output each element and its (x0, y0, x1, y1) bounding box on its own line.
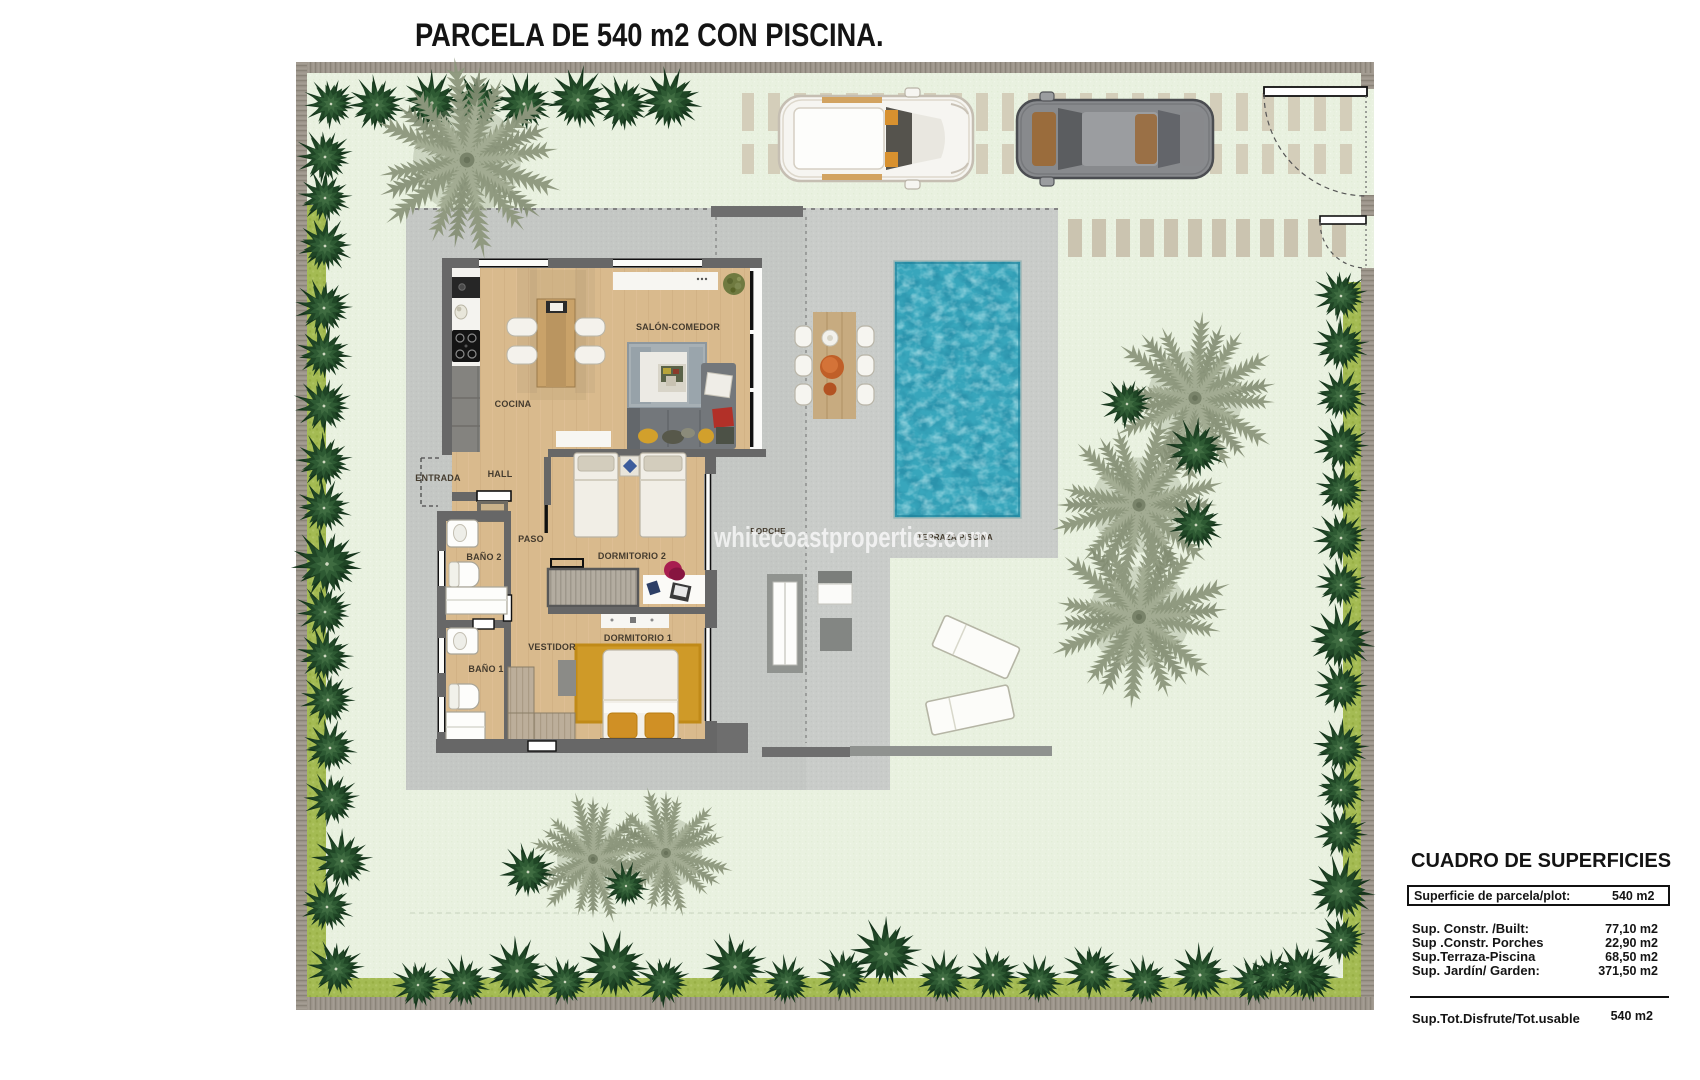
svg-text:Sup.Terraza-Piscina: Sup.Terraza-Piscina (1412, 949, 1536, 964)
svg-text:SALÓN-COMEDOR: SALÓN-COMEDOR (636, 321, 720, 332)
svg-text:HALL: HALL (488, 469, 513, 479)
svg-text:68,50 m2: 68,50 m2 (1605, 950, 1658, 964)
svg-text:COCINA: COCINA (495, 399, 532, 409)
svg-text:PASO: PASO (518, 534, 544, 544)
svg-text:Sup. Constr. /Built:: Sup. Constr. /Built: (1412, 921, 1529, 936)
svg-text:CUADRO DE SUPERFICIES: CUADRO DE SUPERFICIES (1411, 850, 1671, 872)
svg-text:whitecoastproperties.com: whitecoastproperties.com (713, 522, 989, 553)
svg-text:Superficie de parcela/plot:: Superficie de parcela/plot: (1414, 889, 1570, 903)
svg-text:22,90 m2: 22,90 m2 (1605, 936, 1658, 950)
svg-text:ENTRADA: ENTRADA (415, 473, 461, 483)
svg-text:Sup .Constr. Porches: Sup .Constr. Porches (1412, 935, 1543, 950)
svg-text:PARCELA DE 540 m2 CON PISCINA.: PARCELA DE 540 m2 CON PISCINA. (415, 18, 884, 54)
svg-text:BAÑO 2: BAÑO 2 (466, 552, 501, 562)
svg-text:77,10 m2: 77,10 m2 (1605, 922, 1658, 936)
svg-text:BAÑO 1: BAÑO 1 (468, 664, 503, 674)
svg-text:540 m2: 540 m2 (1612, 889, 1654, 903)
svg-text:VESTIDOR: VESTIDOR (528, 642, 576, 652)
svg-text:Sup.Tot.Disfrute/Tot.usable: Sup.Tot.Disfrute/Tot.usable (1412, 1011, 1580, 1026)
svg-text:371,50 m2: 371,50 m2 (1598, 964, 1658, 978)
svg-text:540 m2: 540 m2 (1611, 1009, 1653, 1023)
svg-text:DORMITORIO 1: DORMITORIO 1 (604, 633, 672, 643)
svg-text:DORMITORIO 2: DORMITORIO 2 (598, 551, 666, 561)
svg-text:Sup. Jardín/ Garden:: Sup. Jardín/ Garden: (1412, 963, 1540, 978)
